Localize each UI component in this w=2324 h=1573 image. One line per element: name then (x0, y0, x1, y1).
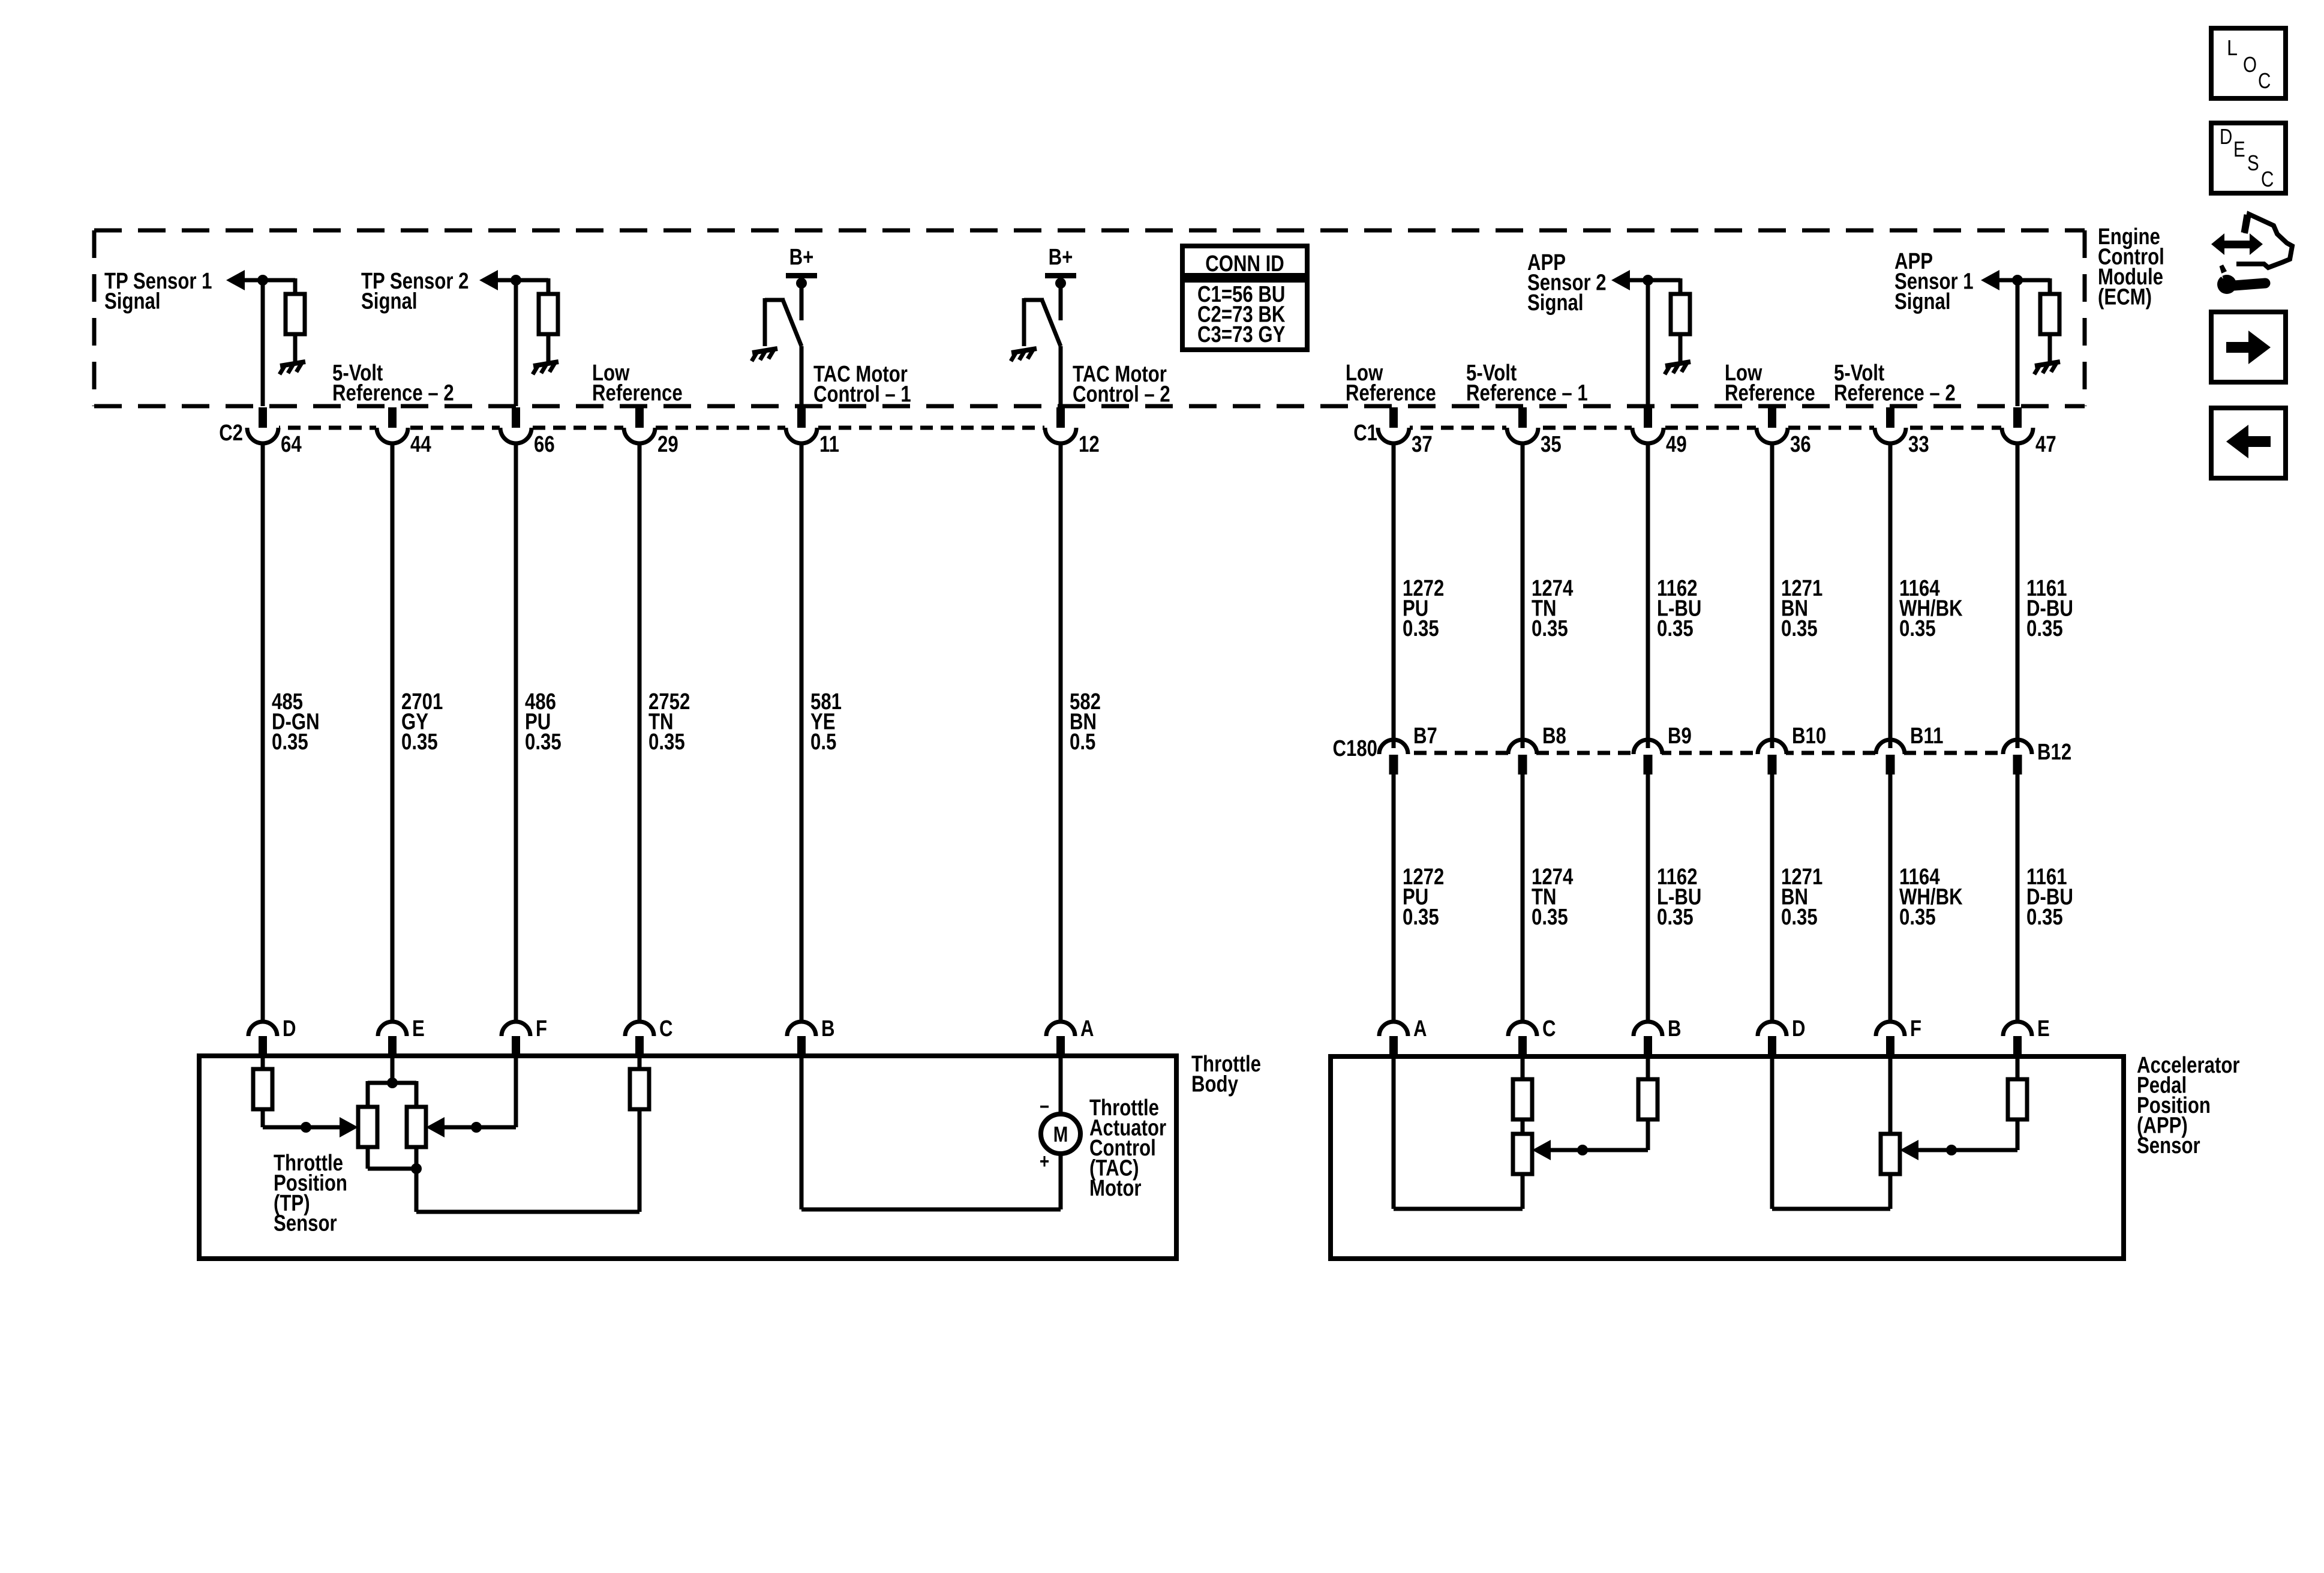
svg-text:C180: C180 (1333, 736, 1378, 761)
svg-text:0.35: 0.35 (2026, 905, 2063, 930)
svg-text:B+: B+ (789, 245, 814, 270)
svg-text:B+: B+ (1049, 245, 1073, 270)
svg-text:A: A (1080, 1016, 1094, 1041)
svg-text:0.35: 0.35 (648, 730, 685, 755)
svg-text:F: F (1910, 1016, 1921, 1041)
svg-text:M: M (1053, 1122, 1068, 1146)
svg-text:Signal: Signal (104, 289, 161, 314)
svg-text:Signal: Signal (361, 289, 418, 314)
svg-text:0.35: 0.35 (272, 730, 308, 755)
svg-text:Control – 2: Control – 2 (1073, 382, 1170, 407)
svg-text:44: 44 (410, 432, 431, 457)
svg-text:Signal: Signal (1894, 289, 1951, 314)
svg-text:B: B (821, 1016, 835, 1041)
svg-text:O: O (2243, 52, 2257, 77)
svg-text:0.35: 0.35 (1657, 616, 1694, 641)
svg-text:B: B (1668, 1016, 1682, 1041)
svg-text:64: 64 (281, 432, 302, 457)
svg-text:11: 11 (819, 432, 839, 457)
svg-text:Sensor: Sensor (2137, 1133, 2200, 1158)
svg-text:+: + (1040, 1150, 1049, 1173)
svg-text:B11: B11 (1910, 724, 1944, 749)
svg-text:0.5: 0.5 (1070, 730, 1095, 755)
svg-text:0.35: 0.35 (1899, 905, 1936, 930)
svg-text:A: A (1413, 1016, 1427, 1041)
svg-text:Reference – 1: Reference – 1 (1466, 381, 1588, 406)
svg-text:Body: Body (1191, 1072, 1238, 1097)
svg-text:0.35: 0.35 (1657, 905, 1694, 930)
svg-text:Reference: Reference (592, 381, 683, 406)
svg-text:E: E (412, 1016, 425, 1041)
svg-text:−: − (1040, 1095, 1049, 1118)
svg-text:33: 33 (1908, 432, 1929, 457)
svg-text:Motor: Motor (1089, 1176, 1142, 1201)
svg-text:C: C (659, 1016, 673, 1041)
svg-text:0.35: 0.35 (525, 730, 562, 755)
svg-text:CONN ID: CONN ID (1205, 251, 1284, 277)
svg-text:B12: B12 (2037, 740, 2071, 765)
svg-text:0.35: 0.35 (1532, 905, 1568, 930)
svg-text:B7: B7 (1413, 724, 1437, 749)
svg-text:C: C (2258, 68, 2271, 93)
svg-text:0.35: 0.35 (1899, 616, 1936, 641)
svg-text:C1: C1 (1353, 421, 1377, 446)
svg-text:47: 47 (2035, 432, 2056, 457)
svg-text:D: D (2220, 124, 2232, 149)
svg-text:E: E (2233, 137, 2245, 161)
svg-text:0.35: 0.35 (1532, 616, 1568, 641)
svg-text:0.35: 0.35 (1781, 616, 1818, 641)
svg-text:37: 37 (1412, 432, 1433, 457)
svg-text:0.35: 0.35 (1781, 905, 1818, 930)
svg-text:F: F (536, 1016, 547, 1041)
svg-text:35: 35 (1541, 432, 1562, 457)
svg-text:Reference: Reference (1725, 381, 1815, 406)
svg-text:Control – 1: Control – 1 (813, 382, 911, 407)
svg-text:0.35: 0.35 (1403, 905, 1439, 930)
svg-text:0.35: 0.35 (1403, 616, 1439, 641)
svg-text:D: D (283, 1016, 296, 1041)
svg-text:0.35: 0.35 (2026, 616, 2063, 641)
svg-text:(ECM): (ECM) (2098, 285, 2152, 310)
svg-text:29: 29 (657, 432, 678, 457)
svg-text:B8: B8 (1542, 724, 1566, 749)
svg-text:Reference – 2: Reference – 2 (332, 381, 454, 406)
svg-text:C: C (1542, 1016, 1556, 1041)
svg-text:Reference: Reference (1346, 381, 1436, 406)
svg-text:Signal: Signal (1527, 290, 1584, 316)
svg-text:Reference – 2: Reference – 2 (1834, 381, 1956, 406)
svg-text:E: E (2037, 1016, 2050, 1041)
svg-text:36: 36 (1790, 432, 1811, 457)
svg-text:0.5: 0.5 (810, 730, 836, 755)
svg-text:C3=73 GY: C3=73 GY (1197, 322, 1285, 347)
svg-text:L: L (2227, 35, 2238, 60)
svg-text:66: 66 (534, 432, 555, 457)
svg-text:D: D (1792, 1016, 1806, 1041)
svg-text:C: C (2261, 167, 2274, 191)
svg-text:Sensor: Sensor (274, 1211, 337, 1236)
svg-text:49: 49 (1666, 432, 1687, 457)
svg-text:S: S (2247, 151, 2259, 175)
svg-text:0.35: 0.35 (401, 730, 438, 755)
svg-text:B9: B9 (1668, 724, 1692, 749)
svg-text:B10: B10 (1792, 724, 1826, 749)
svg-text:12: 12 (1079, 432, 1100, 457)
svg-text:C2: C2 (219, 421, 243, 446)
